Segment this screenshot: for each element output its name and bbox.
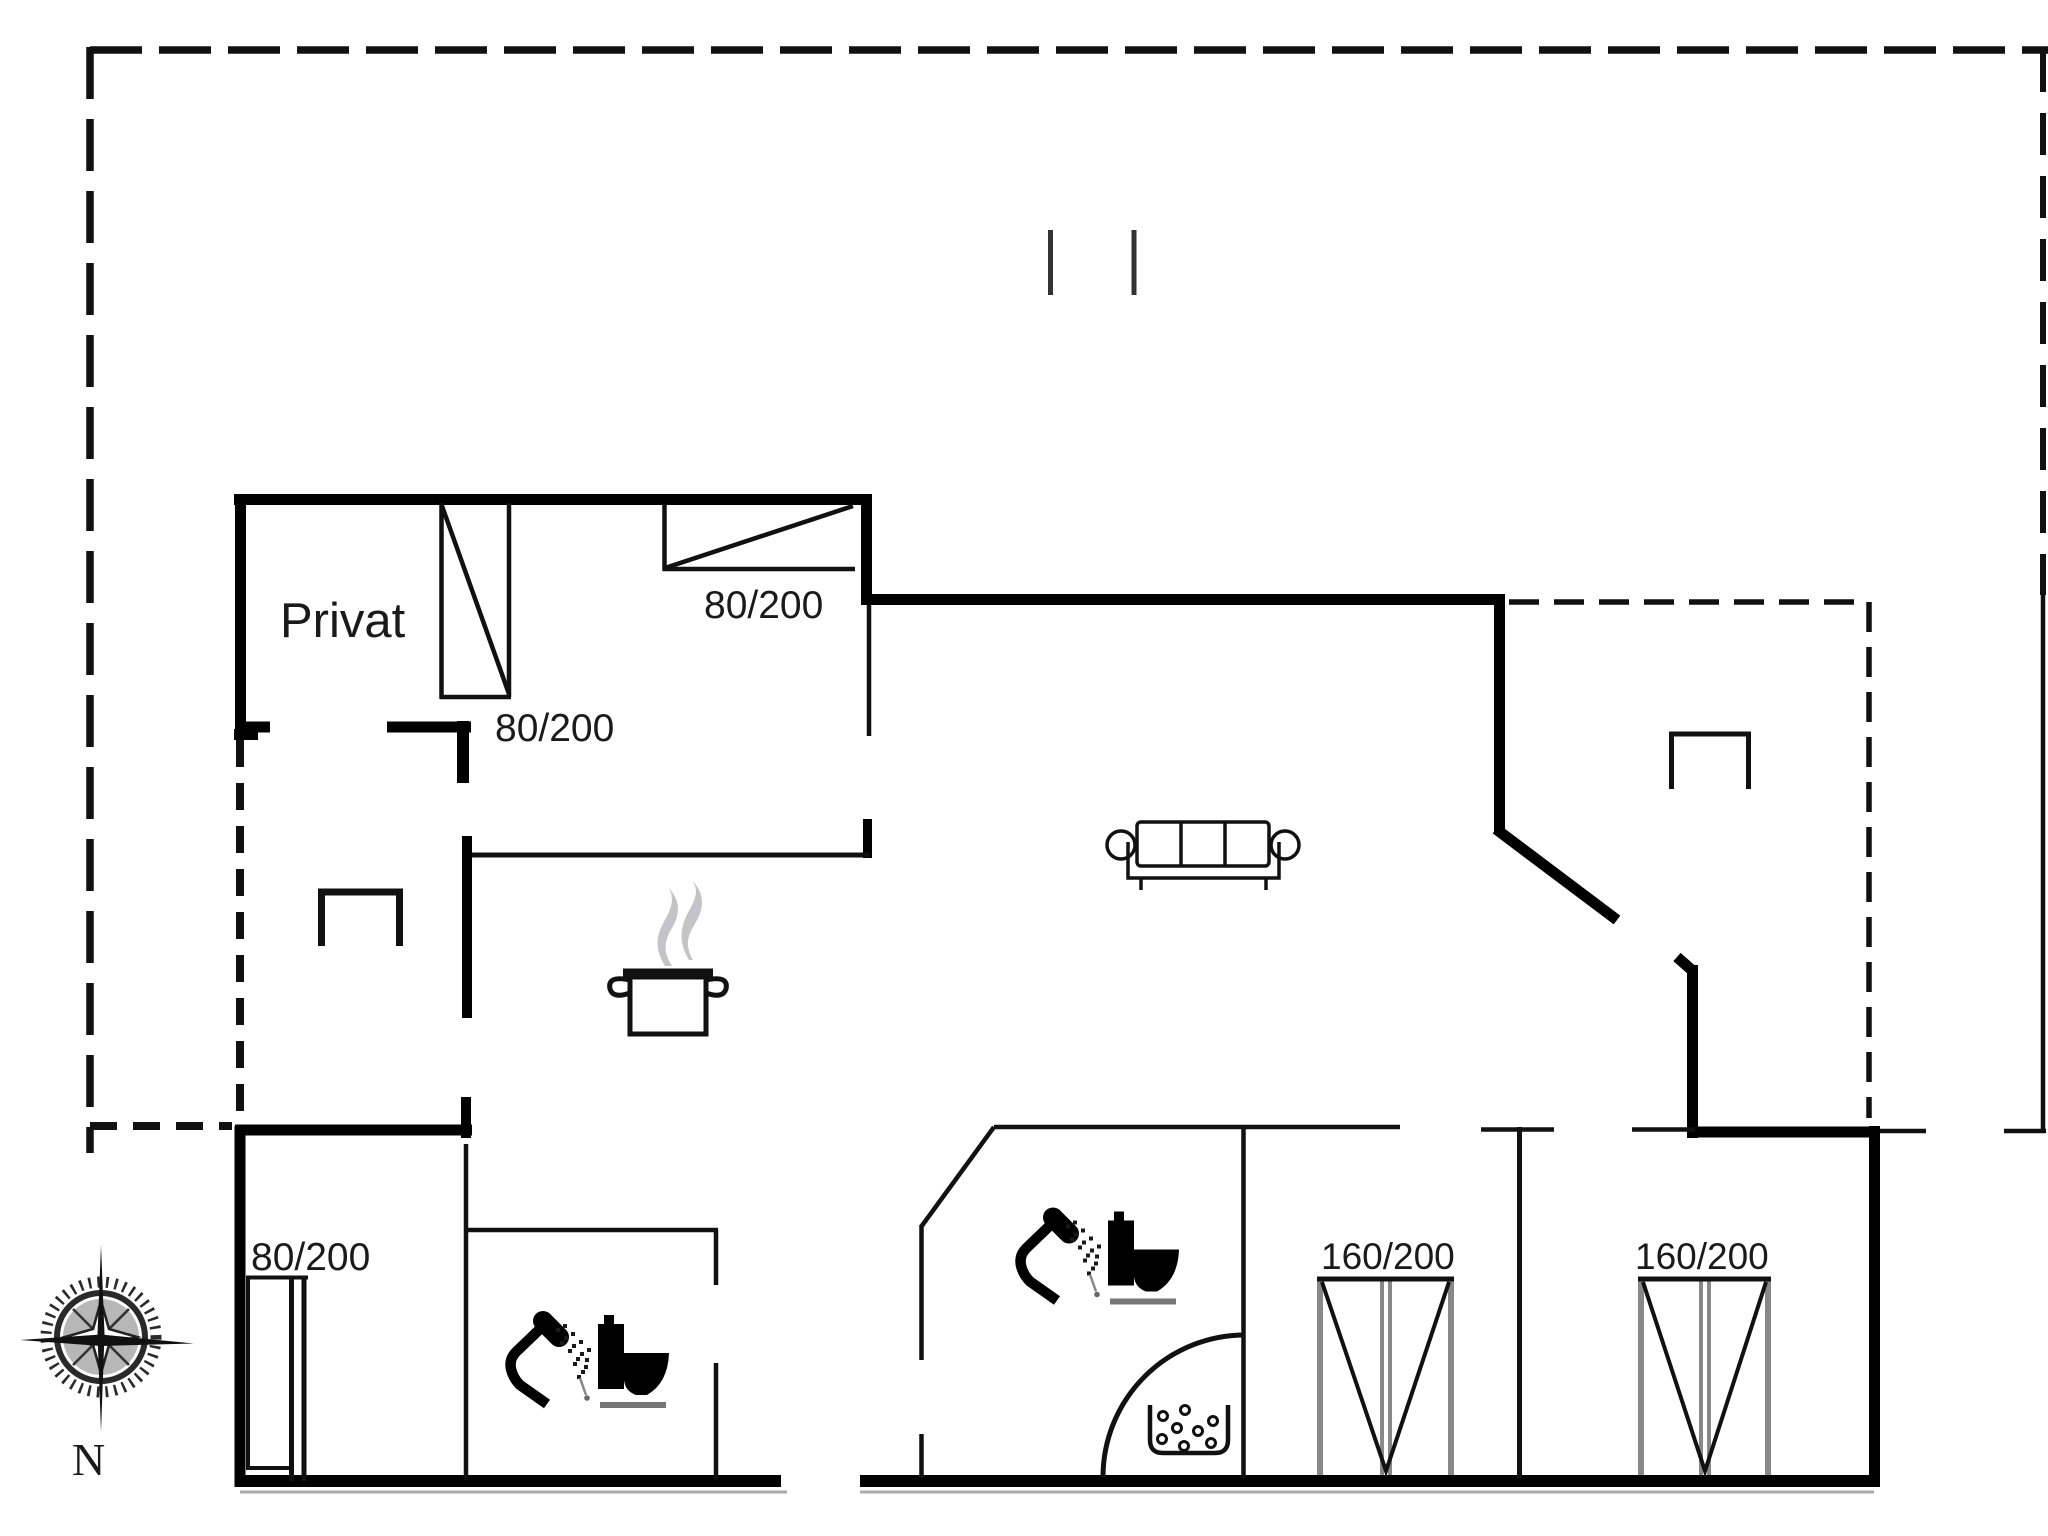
svg-text:80/200: 80/200 [251, 1236, 370, 1279]
svg-text:Privat: Privat [280, 594, 406, 648]
svg-text:160/200: 160/200 [1635, 1236, 1769, 1277]
svg-text:160/200: 160/200 [1321, 1236, 1455, 1277]
svg-text:80/200: 80/200 [704, 584, 823, 627]
svg-text:80/200: 80/200 [495, 707, 614, 750]
svg-text:N: N [72, 1434, 105, 1485]
